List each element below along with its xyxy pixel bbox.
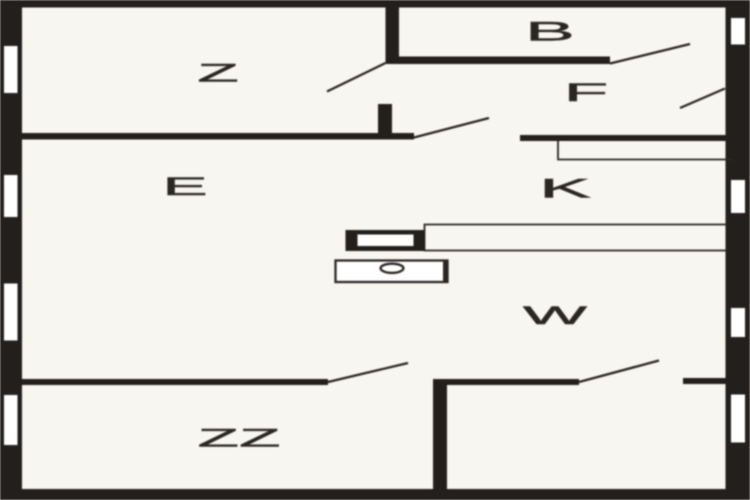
svg-text:B: B: [525, 16, 575, 46]
svg-text:F: F: [564, 78, 609, 106]
svg-text:E: E: [162, 173, 207, 201]
svg-text:W: W: [523, 302, 588, 330]
svg-text:ZZ: ZZ: [197, 424, 280, 452]
svg-text:K: K: [539, 174, 591, 204]
svg-text:Z: Z: [197, 59, 239, 87]
